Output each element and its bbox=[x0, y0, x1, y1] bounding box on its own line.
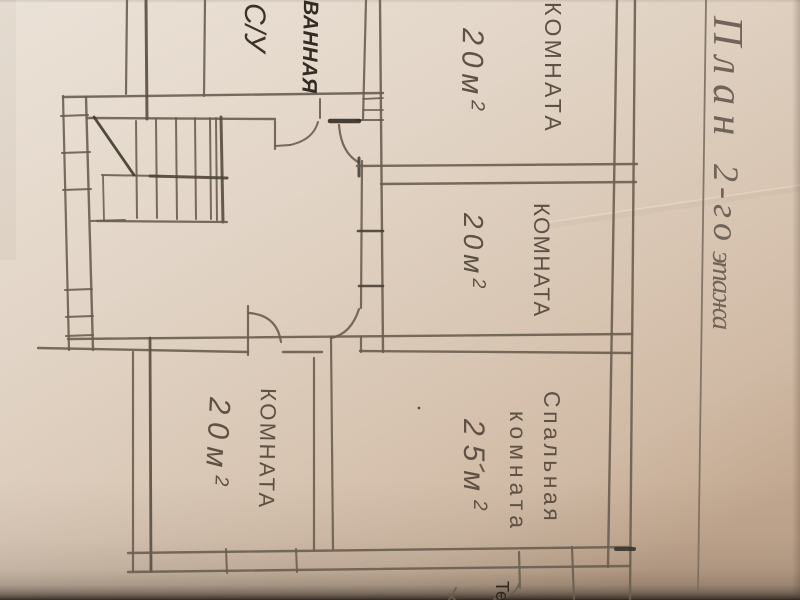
svg-text:ВАННАЯ: ВАННАЯ bbox=[297, 0, 322, 94]
svg-text:комната: комната bbox=[505, 411, 531, 533]
svg-text:2-го: 2-го bbox=[706, 164, 746, 246]
svg-text:Спальная: Спальная bbox=[539, 391, 565, 524]
svg-text:КОМНАТА: КОМНАТА bbox=[254, 388, 281, 510]
svg-text:С/У: С/У bbox=[238, 3, 271, 55]
svg-text:этажа: этажа bbox=[706, 251, 738, 330]
svg-text:КОМНАТА: КОМНАТА bbox=[540, 2, 566, 134]
svg-text:План: План bbox=[704, 15, 750, 145]
svg-text:Те: Те bbox=[492, 581, 512, 600]
svg-text:КОМНАТА: КОМНАТА bbox=[529, 203, 554, 318]
